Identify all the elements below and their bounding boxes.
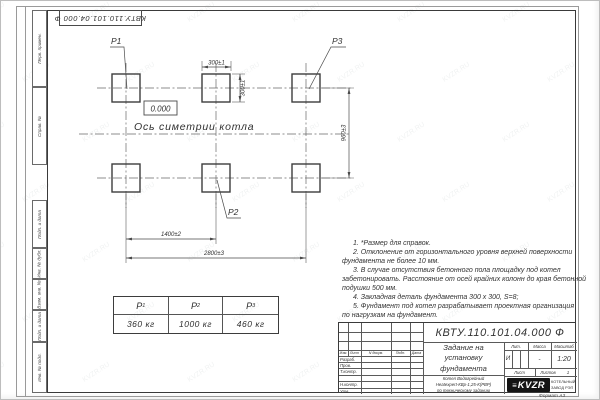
col-header-ndoc: N докум.	[361, 350, 391, 356]
role-tkontr: Т.контр.	[340, 368, 361, 375]
lit-value: И	[504, 350, 512, 368]
company-line: КОТЕЛЬНЫЙ	[551, 379, 577, 385]
dim-row-spacing: 960±3	[342, 124, 348, 141]
logo-zigzag-icon: ≡	[512, 381, 517, 390]
col-header-podp: Подп.	[391, 350, 410, 356]
p-sub: 2	[197, 303, 200, 309]
load-value-p3: 460 кг	[223, 315, 278, 333]
note-line: фундамента не более 10 мм.	[342, 257, 574, 266]
load-table-header-p1: P1	[114, 297, 169, 315]
lit-header: Лит.	[504, 342, 528, 350]
dim-col-spacing: 1400±2	[161, 232, 182, 238]
load-table-header-p3: P3	[223, 297, 278, 315]
dimension-lines	[126, 67, 349, 258]
load-table-header-p2: P2	[169, 297, 224, 315]
title-block: Изм. Лист N докум. Подп. Дата Разраб. Пр…	[338, 322, 576, 393]
note-line: 2. Отклонение от горизонтального уровня …	[342, 248, 574, 257]
pad-label-p1: P1	[111, 36, 122, 46]
note-line: забетонировать. Расстояние от осей крайн…	[342, 275, 574, 284]
dim-pad-height: 300±1	[241, 80, 247, 97]
notes-block: 1. *Размер для справок. 2. Отклонение от…	[342, 239, 574, 320]
designation-cell: КВТУ.110.101.04.000 Ф	[423, 323, 577, 342]
drawing-sheet: KVZR.RUKVZR.RUKVZR.RUKVZR.RUKVZR.RUKVZR.…	[0, 0, 600, 400]
company-line: ЗАВОД РЭП	[551, 385, 577, 391]
sheets-value: 1	[561, 368, 575, 376]
dimension-arrows	[126, 66, 350, 260]
note-line: по нагрузкам на фундамент.	[342, 311, 574, 320]
load-table: P1 P2 P3 360 кг 1000 кг 460 кг	[113, 296, 279, 334]
role-utv: Утв.	[340, 388, 361, 394]
company-name: КОТЕЛЬНЫЙ ЗАВОД РЭП	[551, 379, 577, 390]
role-nkontr: Н.контр.	[340, 381, 361, 388]
note-line: 4. Закладная деталь фундамента 300 х 300…	[342, 293, 574, 302]
axis-label: Ось симетрии котла	[134, 121, 254, 133]
sheets-label: Листов	[535, 368, 561, 376]
logo-text: KVZR	[518, 380, 545, 391]
mass-header: Масса	[528, 342, 551, 350]
dim-pad-width: 300±1	[208, 61, 225, 67]
mass-value: -	[528, 350, 551, 368]
p-sub: 1	[142, 303, 145, 309]
note-line: 1. *Размер для справок.	[342, 239, 574, 248]
kvzr-logo: ≡ KVZR	[507, 378, 550, 392]
load-value-p1: 360 кг	[114, 315, 169, 333]
product-line: по техническому заданию	[423, 388, 504, 394]
format-note: Формат А3	[528, 394, 576, 399]
doc-title-cell: Задание на установку фундамента	[425, 342, 502, 375]
dim-total-span: 2800±3	[203, 251, 225, 257]
center-lines	[79, 63, 353, 208]
elevation-value: 0.000	[150, 105, 171, 114]
note-line: 5. Фундамент под котел разрабатывает про…	[342, 302, 574, 311]
product-cell: Котел Водогрейный Heatexpert-КВр-1,25-К(…	[423, 376, 504, 394]
scale-value: 1:20	[551, 350, 577, 368]
col-header-data: Дата	[410, 350, 423, 356]
note-line: подушки 500 мм.	[342, 284, 574, 293]
sheet-label: Лист	[504, 368, 535, 376]
note-line: 3. В случае отсутствия бетонного пола пл…	[342, 266, 574, 275]
load-value-p2: 1000 кг	[169, 315, 224, 333]
p-sub: 3	[252, 303, 255, 309]
pad-label-p3: P3	[332, 36, 343, 46]
pad-label-p2: P2	[228, 207, 239, 217]
scale-header: Масштаб	[551, 342, 577, 350]
